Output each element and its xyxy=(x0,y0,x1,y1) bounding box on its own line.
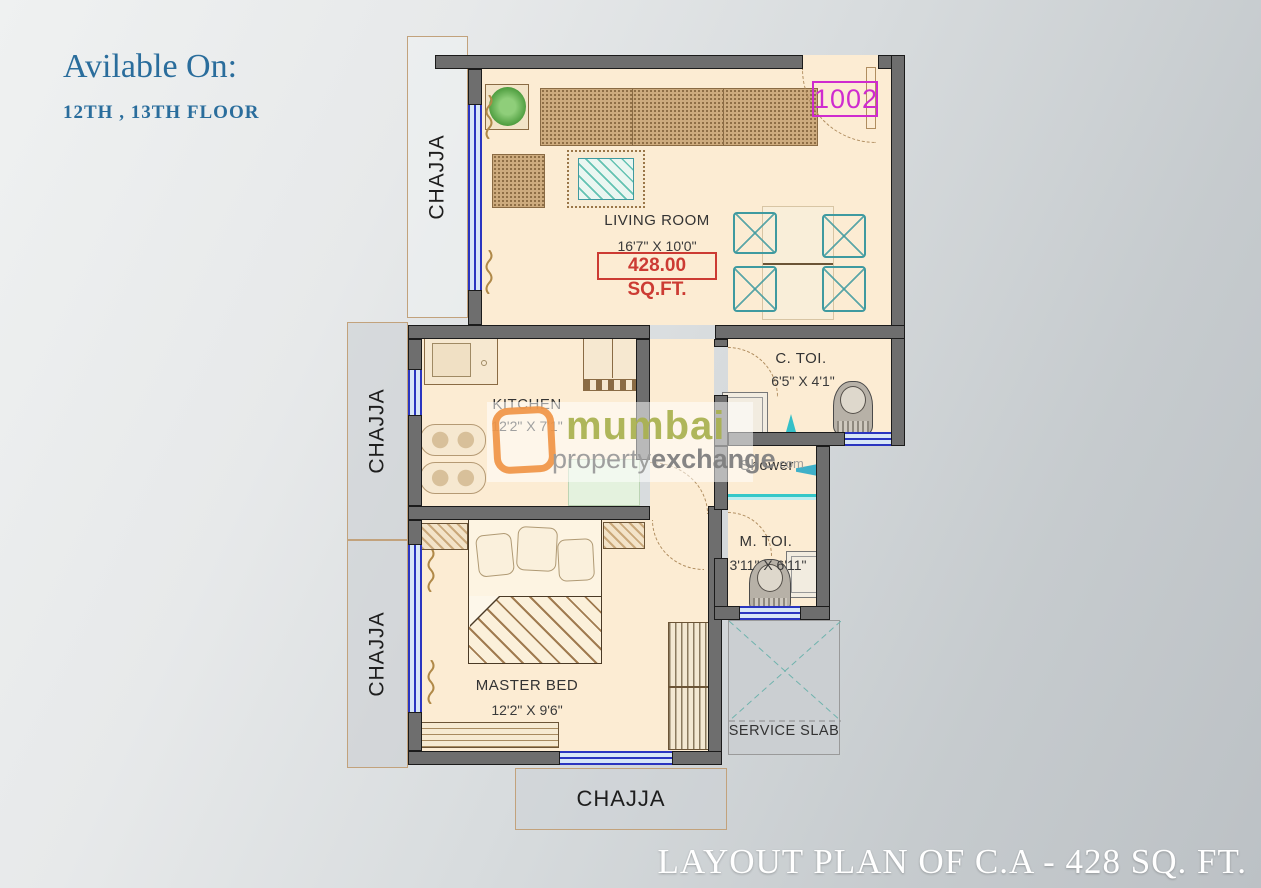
dining-chair xyxy=(733,266,777,312)
coffee-table-glass xyxy=(578,158,634,200)
kitchen-sink xyxy=(424,335,498,385)
master-bed-dim: 12'2" X 9'6" xyxy=(427,702,627,718)
m-toi-dim: 3'11" X 6'11" xyxy=(688,557,848,573)
dining-chair xyxy=(822,266,866,312)
c-toi-label: C. TOI. xyxy=(721,350,881,367)
wall-segment xyxy=(408,506,650,520)
area-badge: 428.00 SQ.FT. xyxy=(597,252,717,280)
master-bed-label: MASTER BED xyxy=(427,677,627,694)
wall-segment xyxy=(468,290,482,325)
chajja-label-top: CHAJJA xyxy=(426,134,450,219)
curtain-squiggle-icon xyxy=(484,95,494,139)
c-toi-window xyxy=(845,432,891,446)
sofa xyxy=(540,88,818,146)
chajja-box-lower: CHAJJA xyxy=(347,540,408,768)
toilet-wc xyxy=(833,381,873,436)
plant-icon xyxy=(489,87,526,126)
chajja-box-middle: CHAJJA xyxy=(347,322,408,540)
blanket-fold xyxy=(469,596,499,626)
wardrobe xyxy=(668,622,710,750)
bedside-ledge xyxy=(603,522,645,549)
unit-number-badge: 1002 xyxy=(812,81,878,117)
wall-segment xyxy=(408,325,650,339)
bedside-ledge xyxy=(421,523,468,550)
watermark-exchange: exchange xyxy=(651,444,776,474)
wall-segment xyxy=(408,520,422,545)
living-room-label: LIVING ROOM xyxy=(557,212,757,229)
chajja-box-bottom: CHAJJA xyxy=(515,768,727,830)
available-on-title: Avilable On: xyxy=(63,48,237,86)
wall-segment xyxy=(408,751,560,765)
master-window-bottom xyxy=(560,751,672,765)
wall-segment xyxy=(800,606,830,620)
curtain-squiggle-icon xyxy=(426,548,436,592)
floors-subtitle: 12TH , 13TH FLOOR xyxy=(63,102,259,124)
wall-segment xyxy=(435,55,803,69)
dresser xyxy=(417,722,559,748)
wall-segment xyxy=(714,606,740,620)
wall-segment xyxy=(891,55,905,446)
side-seat xyxy=(492,154,545,208)
chajja-label-lower: CHAJJA xyxy=(366,611,390,696)
chajja-label-middle: CHAJJA xyxy=(366,388,390,473)
watermark-domain: propertyexchange.com xyxy=(552,444,804,475)
shower-partition xyxy=(728,494,816,500)
living-window xyxy=(468,105,482,290)
page-title: LAYOUT PLAN OF C.A - 428 SQ. FT. xyxy=(658,842,1248,882)
chajja-box-top: CHAJJA xyxy=(407,36,468,318)
watermark-property: property xyxy=(552,444,651,474)
wall-segment xyxy=(468,69,482,105)
wall-segment xyxy=(408,339,422,370)
pillow xyxy=(475,532,515,578)
stove-burner xyxy=(420,462,486,494)
chajja-label-bottom: CHAJJA xyxy=(576,786,665,812)
wall-segment xyxy=(715,325,905,339)
m-toi-label: M. TOI. xyxy=(686,533,846,550)
watermark-brand: mumbai xyxy=(566,404,725,449)
watermark-logo-icon xyxy=(491,405,556,474)
c-toi-dim: 6'5" X 4'1" xyxy=(723,373,883,389)
wall-segment xyxy=(672,751,722,765)
kitchen-cabinet xyxy=(583,337,640,391)
wall-segment xyxy=(714,339,728,347)
watermark-tld: .com xyxy=(776,456,804,471)
wall-segment xyxy=(408,712,422,751)
kitchen-window xyxy=(408,370,422,415)
floor-plan-page: Avilable On: 12TH , 13TH FLOOR CHAJJA CH… xyxy=(0,0,1261,888)
master-window-left xyxy=(408,545,422,712)
pillow xyxy=(516,526,558,572)
dining-chair xyxy=(822,214,866,258)
curtain-squiggle-icon xyxy=(484,250,494,294)
service-slab-label: SERVICE SLAB xyxy=(714,723,854,739)
pillow xyxy=(557,538,595,582)
wall-segment xyxy=(408,415,422,506)
m-toi-window xyxy=(740,606,800,620)
